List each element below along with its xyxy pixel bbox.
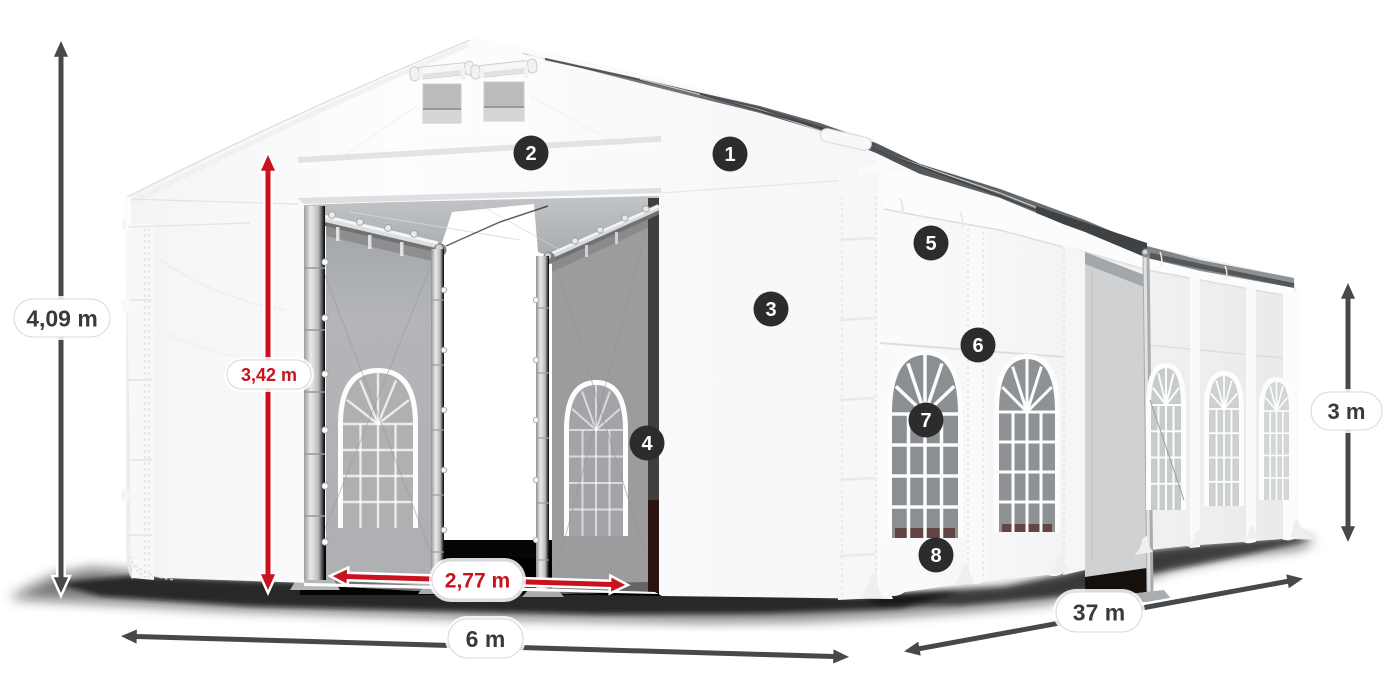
svg-text:7: 7 — [920, 410, 931, 432]
svg-text:3,42 m: 3,42 m — [241, 365, 297, 385]
svg-text:1: 1 — [724, 144, 735, 166]
svg-text:3: 3 — [765, 299, 776, 321]
svg-text:8: 8 — [930, 545, 941, 567]
svg-text:4,09 m: 4,09 m — [26, 305, 98, 331]
svg-text:4: 4 — [641, 433, 653, 455]
svg-text:37 m: 37 m — [1073, 599, 1125, 625]
svg-text:2: 2 — [525, 143, 536, 165]
svg-text:2,77 m: 2,77 m — [445, 570, 510, 593]
svg-text:6: 6 — [972, 335, 983, 357]
svg-text:5: 5 — [925, 233, 936, 255]
svg-text:3 m: 3 m — [1328, 399, 1366, 424]
svg-text:6 m: 6 m — [466, 626, 506, 652]
